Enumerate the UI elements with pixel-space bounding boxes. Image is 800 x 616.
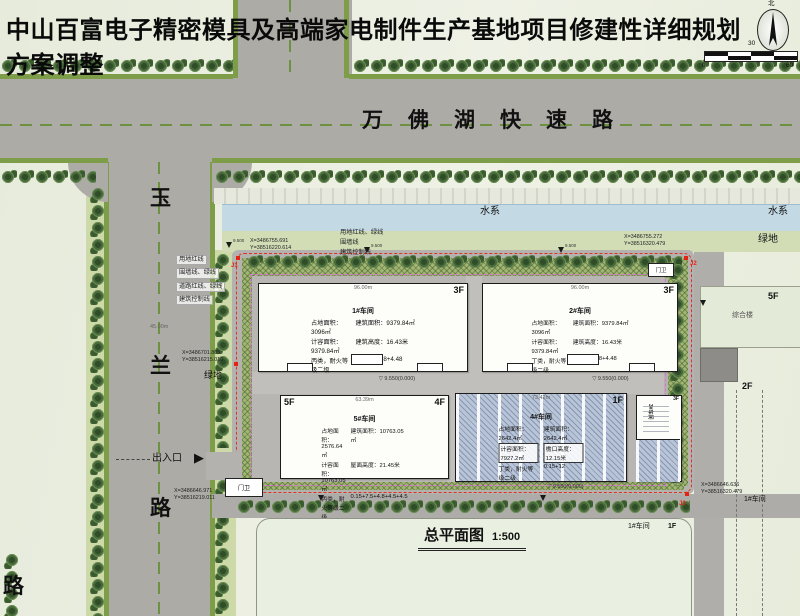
- corner-road-name-char: 路: [3, 576, 24, 597]
- building-name: 4#车间: [499, 412, 584, 422]
- building-info: 2#车间 占地面积：3096㎡建筑面积：9379.84㎡ 计容面积：9379.8…: [532, 306, 629, 382]
- building-1-workshop: 96.00m 3F 1#车间 占地面积：3096㎡建筑面积：9379.84㎡ 计…: [258, 283, 468, 372]
- info-line: 丁类，耐火等级二级: [532, 356, 568, 374]
- guard-house-label: 门卫: [238, 483, 250, 492]
- neighbor-grey-building: [700, 348, 738, 382]
- spot-elevation-value: 9.500: [233, 238, 244, 243]
- legend-left-list: 用地红线 围墙线、绿线 道路红线、绿线 建筑控制线: [176, 255, 225, 308]
- guard-house-ne: 门卫: [648, 263, 674, 277]
- scale-bar-label: 30: [748, 41, 755, 48]
- coordinate-y: Y=38516320.479: [624, 241, 665, 248]
- level-value: 9.550(0.000): [553, 484, 584, 490]
- site-plan-canvas: 96.00m 3F 1#车间 占地面积：3096㎡建筑面积：9379.84㎡ 计…: [0, 0, 800, 616]
- loading-dock: [629, 363, 655, 372]
- compass-needle-icon: [769, 12, 777, 46]
- coordinate-y: Y=38516320.479: [701, 489, 742, 496]
- building-info: 5#车间 占地面积：2576.64㎡建筑面积：10763.05㎡ 计容面积：10…: [321, 414, 407, 529]
- dashed-projection-line: [736, 390, 737, 616]
- spot-elevation-marker: [318, 495, 324, 501]
- north-label: 北: [768, 1, 775, 8]
- north-road-name: 万佛湖快速路: [362, 110, 638, 131]
- west-road-name-char: 玉: [150, 188, 171, 209]
- building-name: 5#车间: [321, 414, 407, 424]
- building-name: 2#车间: [532, 306, 629, 316]
- neighbor-floor-label: 5F: [768, 292, 779, 301]
- boundary-point-marker: [685, 492, 689, 496]
- floor-label: 1F: [612, 396, 623, 405]
- tree-column: [88, 186, 108, 616]
- info-line: 丙类，耐火等级二级: [311, 356, 349, 374]
- info-line: 计容面积：9379.84㎡: [311, 337, 349, 355]
- dashed-projection-line: [762, 390, 763, 616]
- dimension-label: 73.42m: [456, 396, 626, 402]
- green-band: [222, 231, 800, 252]
- scale-bar-label: 60: [786, 63, 793, 70]
- spot-elevation-value: 9.500: [371, 243, 382, 248]
- grass-line: [0, 158, 108, 163]
- plan-scale: 1:500: [492, 531, 520, 543]
- neighbor-floor-label: 2F: [742, 382, 753, 391]
- coordinate-x: X=3486701.805: [182, 350, 223, 357]
- neighbor-building-label: 1#车间: [744, 496, 766, 503]
- boundary-point-label: J2: [690, 261, 697, 267]
- west-road-name-char: 兰: [150, 356, 171, 377]
- info-line: 檐口高度：12.15米: [544, 443, 584, 463]
- riverside-walkway: [214, 188, 800, 204]
- boundary-point-label: J1: [231, 263, 238, 269]
- guard-house-label: 门卫: [655, 266, 666, 274]
- water-label: 水系: [768, 207, 788, 217]
- coordinate-y: Y=38516220.614: [250, 245, 291, 252]
- level-triangle-icon: ▽: [547, 484, 551, 490]
- building-5-workshop: 63.39m 5F 4F 5#车间 占地面积：2576.64㎡建筑面积：1076…: [280, 395, 449, 479]
- coordinate-callout: X=3486701.805 Y=38516215.010: [182, 350, 223, 364]
- plan-title: 总平面图1:500: [418, 524, 526, 551]
- drawing-title: 中山百富电子精密模具及高端家电制件生产基地项目修建性详细规划方案调整: [6, 10, 748, 80]
- spot-elevation-marker: [700, 300, 706, 306]
- info-line: 建筑高度：16.43米: [573, 337, 629, 355]
- info-line: 占地面积：3096㎡: [532, 318, 568, 336]
- legend-item: 围墙线、绿线: [176, 268, 219, 278]
- coordinate-x: X=3486755.272: [624, 234, 665, 241]
- legend-item: 建筑控制线: [176, 295, 213, 305]
- loading-dock: [417, 363, 443, 372]
- building-4-workshop: 73.42m 1F 4#车间 占地面积：2642.4㎡建筑面积：2642.4㎡ …: [455, 393, 627, 482]
- guard-house: 门卫: [225, 478, 263, 497]
- grass-line: [212, 158, 800, 163]
- legend-item: 道路红线、绿线: [176, 282, 225, 292]
- west-road-name-char: 路: [150, 498, 171, 519]
- legend-item: 建筑控制线: [340, 248, 383, 258]
- road-median: [158, 162, 160, 616]
- dimension-label: 96.00m: [259, 286, 467, 292]
- annex-text-lines: [643, 406, 669, 434]
- spot-elevation-marker: [226, 242, 232, 248]
- info-line: 占地面积：2642.4㎡: [499, 424, 539, 442]
- info-line: 丙类，耐火等级二级: [321, 494, 345, 521]
- info-line: 计容面积：7927.2㎡: [499, 443, 539, 463]
- water-band: [222, 204, 800, 232]
- loading-dock: [507, 363, 533, 372]
- floor-label: 3F: [453, 286, 464, 295]
- floor-label: 3F: [663, 286, 674, 295]
- level-value: 9.550(0.000): [384, 376, 415, 382]
- info-line: 0.15+7.5+4.8+4.5+4.5: [351, 494, 408, 521]
- entrance-label: 出入口: [152, 454, 182, 464]
- coordinate-callout: X=3486755.272 Y=38516320.479: [624, 234, 665, 248]
- boundary-point-marker: [684, 256, 688, 260]
- scale-bar-segment: [751, 52, 774, 56]
- level-value: 9.550(0.000): [598, 376, 629, 382]
- info-line: 丁类，耐火等级二级: [499, 464, 539, 482]
- coordinate-x: X=3486646.971: [174, 488, 215, 495]
- loading-dock: [567, 354, 599, 365]
- info-line: 建筑面积：9379.84㎡: [356, 318, 416, 336]
- legend-item: 用地红线: [176, 255, 207, 265]
- coordinate-callout: X=3486755.691 Y=38516220.614: [250, 238, 291, 252]
- tree-row: [214, 167, 800, 188]
- spot-elevation-value: 9.500: [565, 243, 576, 248]
- entrance-arrow-icon: ▶: [194, 451, 204, 464]
- info-line: 占地面积：3096㎡: [311, 318, 349, 336]
- neighbor-building-label: 1#车间: [628, 523, 650, 530]
- spot-elevation-marker: [364, 247, 370, 253]
- floor-label: 4F: [434, 398, 445, 407]
- boundary-point-label: J3: [679, 501, 686, 507]
- entrance-driveway: [206, 452, 240, 480]
- water-label: 水系: [480, 207, 500, 217]
- floor-label: 5F: [284, 398, 295, 407]
- green-label: 绿地: [204, 371, 222, 380]
- building-2-workshop: 96.00m 3F 2#车间 占地面积：3096㎡建筑面积：9379.84㎡ 计…: [482, 283, 678, 372]
- building-3-annex: 3F 3#车间: [636, 395, 682, 482]
- coordinate-y: Y=38516219.011: [174, 495, 215, 502]
- tree-row: [236, 497, 690, 517]
- spot-elevation-marker: [540, 495, 546, 501]
- building-info: 1#车间 占地面积：3096㎡建筑面积：9379.84㎡ 计容面积：9379.8…: [311, 306, 415, 382]
- coordinate-y: Y=38516215.010: [182, 357, 223, 364]
- info-line: 建筑面积：9379.84㎡: [573, 318, 629, 336]
- info-line: 0.15+12: [544, 464, 584, 482]
- plan-title-text: 总平面图: [424, 527, 484, 544]
- dimension-label: 63.39m: [281, 398, 448, 404]
- road-width-dimension: 45.00m: [150, 325, 168, 331]
- legend-item: 用地红线、绿线: [340, 228, 383, 238]
- tree-row: [0, 167, 96, 188]
- info-line: 计容面积：10763.05㎡: [321, 460, 345, 493]
- floor-label: 3F: [673, 397, 679, 402]
- info-line: 占地面积：2576.64㎡: [321, 426, 345, 459]
- loading-dock: [351, 354, 383, 365]
- scale-bar-segment: [774, 56, 797, 60]
- coordinate-callout: X=3486646.971 Y=38516219.011: [174, 488, 215, 502]
- boundary-point-marker: [236, 256, 240, 260]
- building-name: 1#车间: [311, 306, 415, 316]
- north-compass: [757, 9, 789, 51]
- neighbor-floor-label: 1F: [668, 523, 676, 530]
- green-label: 绿地: [758, 235, 778, 245]
- info-line: 计容面积：9379.84㎡: [532, 337, 568, 355]
- info-line: 屋面高度：21.45米: [351, 460, 408, 493]
- annex-hatched-half: [636, 439, 680, 482]
- building-info: 4#车间 占地面积：2642.4㎡建筑面积：2642.4㎡ 计容面积：7927.…: [499, 412, 584, 490]
- neighbor-building-label: 综合楼: [732, 312, 753, 319]
- level-triangle-icon: ▽: [592, 376, 596, 382]
- coordinate-callout: X=3486646.636 Y=38516320.479: [701, 482, 742, 496]
- info-line: 建筑高度：16.43米: [356, 337, 416, 355]
- coordinate-x: X=3486646.636: [701, 482, 742, 489]
- info-line: 建筑面积：2642.4㎡: [544, 424, 584, 442]
- info-line: 建筑面积：10763.05㎡: [351, 426, 408, 459]
- boundary-point-marker: [234, 362, 238, 366]
- dimension-label: 96.00m: [483, 286, 677, 292]
- loading-dock: [287, 363, 313, 372]
- entrance-leader-line: [116, 459, 150, 460]
- coordinate-x: X=3486755.691: [250, 238, 291, 245]
- spot-elevation-marker: [558, 247, 564, 253]
- level-triangle-icon: ▽: [379, 376, 383, 382]
